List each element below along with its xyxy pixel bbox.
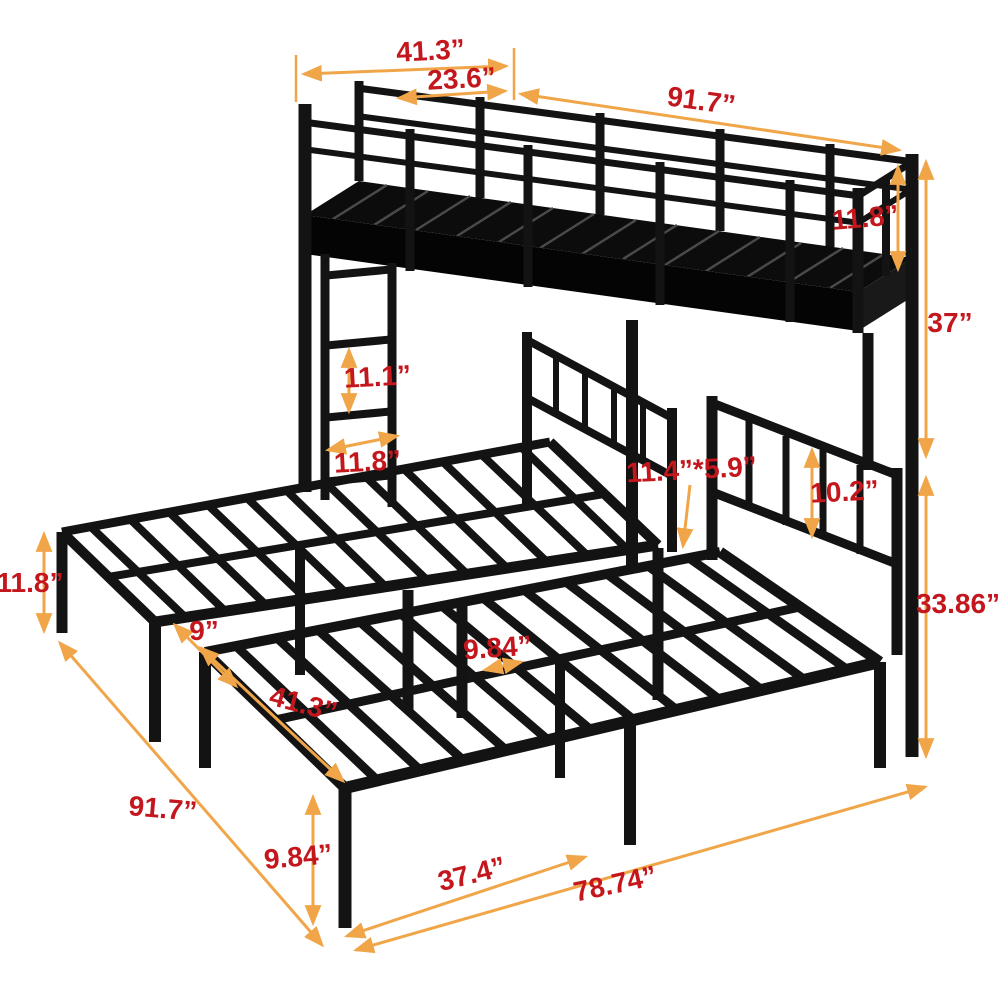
dim-lower-bed-height-label: 33.86” [916,588,1000,619]
dim-slat-spacing-label: 9.84” [462,630,532,666]
dim-support-post-size-label: 11.4”*5.9” [625,451,757,489]
dim-lower-bed-length-label: 91.7” [127,790,198,827]
product-dimension-diagram: 41.3” 23.6” 91.7” 11.8” 37” 33.86” 11.1” [0,0,1000,1000]
dim-left-leg-height-label: 11.8” [0,567,63,598]
dim-top-bed-length-label: 91.7” [665,80,737,120]
dim-total-front-span-label: 78.74” [571,860,660,908]
dim-top-rail-section-label: 23.6” [426,61,496,96]
bunk-bed-diagram-canvas: 41.3” 23.6” 91.7” 11.8” 37” 33.86” 11.1” [0,0,1000,1000]
dim-front-leg-height-label: 9.84” [263,838,334,875]
dim-guardrail-height-label: 11.8” [830,199,899,236]
dim-ladder-rung-spacing: 11.1” [343,350,411,411]
dim-ladder-rung-spacing-label: 11.1” [343,359,411,393]
dimension-annotations: 41.3” 23.6” 91.7” 11.8” 37” 33.86” 11.1” [0,33,1000,950]
dim-lower-bed-height: 33.86” [916,478,1000,756]
dim-headboard-rail-gap-label: 10.2” [809,474,879,509]
dim-left-leg-height: 11.8” [0,534,63,631]
dim-lower-bed-width: 41.3” [201,648,343,781]
dim-ladder-width-label: 11.8” [333,444,401,478]
dim-under-bunk-clearance-label: 37” [927,307,972,338]
dim-under-bunk-clearance: 37” [926,162,973,456]
dim-front-bed-span-label: 37.4” [435,850,509,897]
dim-front-leg-height: 9.84” [263,797,334,923]
dim-bed-gap-label: 9” [189,615,219,646]
